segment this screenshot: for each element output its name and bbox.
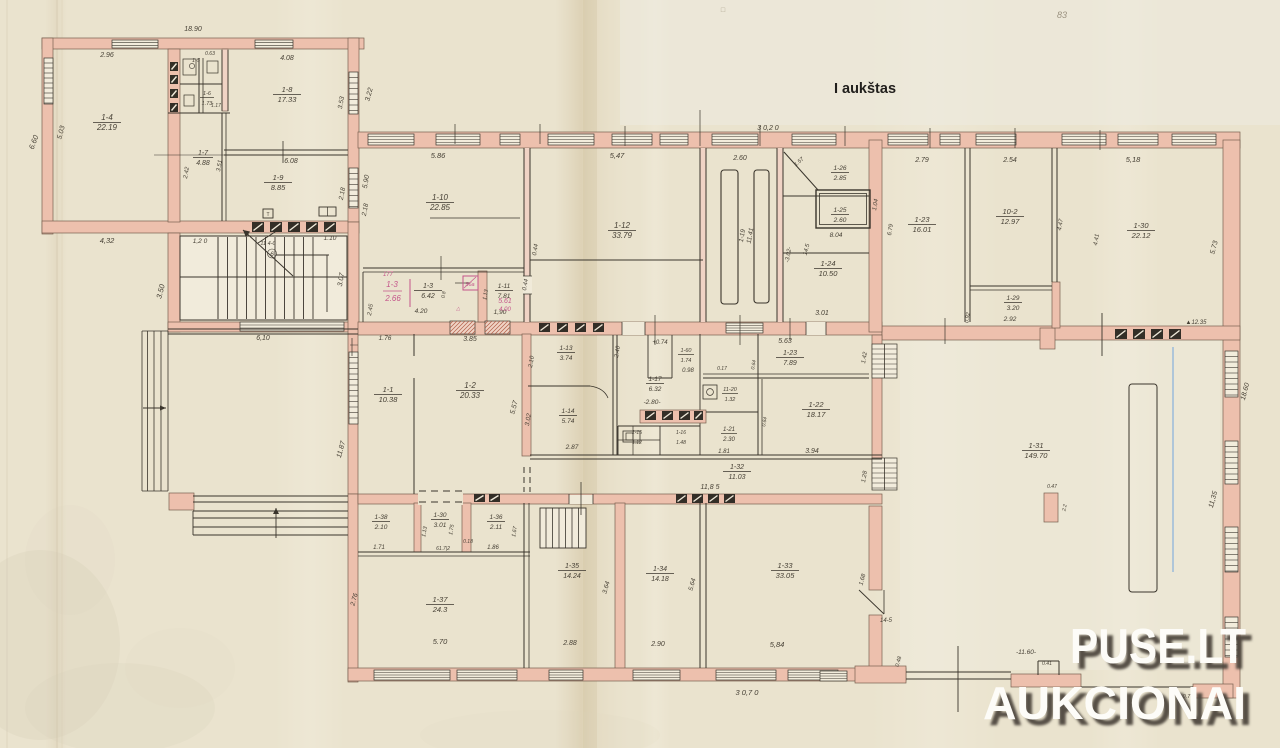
svg-text:20.33: 20.33 xyxy=(459,391,481,400)
svg-text:2.96: 2.96 xyxy=(99,52,114,59)
svg-text:1-37: 1-37 xyxy=(432,595,448,604)
svg-text:4.00: 4.00 xyxy=(499,307,511,313)
svg-text:5.70: 5.70 xyxy=(433,637,448,646)
svg-text:1-22: 1-22 xyxy=(808,400,824,409)
svg-text:4.20: 4.20 xyxy=(415,308,428,315)
svg-text:2.88: 2.88 xyxy=(562,640,577,647)
svg-text:18.90: 18.90 xyxy=(184,26,202,33)
svg-text:22.19: 22.19 xyxy=(96,123,118,132)
svg-text:6.32: 6.32 xyxy=(649,386,662,393)
svg-text:0.17: 0.17 xyxy=(717,366,727,372)
svg-text:2.11: 2.11 xyxy=(489,524,503,531)
svg-text:1-25: 1-25 xyxy=(833,207,846,214)
svg-text:1-3: 1-3 xyxy=(386,280,398,289)
svg-text:1-34: 1-34 xyxy=(653,566,667,573)
svg-text:1-33: 1-33 xyxy=(777,561,793,570)
svg-text:1-15: 1-15 xyxy=(632,430,642,436)
svg-text:1-38: 1-38 xyxy=(374,514,387,521)
svg-text:5,18: 5,18 xyxy=(1126,155,1141,164)
svg-text:1.71: 1.71 xyxy=(373,545,385,551)
svg-text:-11.60-: -11.60- xyxy=(1016,649,1037,656)
svg-text:8.04: 8.04 xyxy=(830,232,843,239)
svg-text:1-26: 1-26 xyxy=(833,165,846,172)
svg-text:14-5: 14-5 xyxy=(880,618,893,624)
svg-text:56a: 56a xyxy=(465,282,474,288)
svg-text:83: 83 xyxy=(1057,10,1067,20)
svg-text:△: △ xyxy=(455,306,460,312)
svg-text:I aukštas: I aukštas xyxy=(834,81,896,97)
svg-text:16.01: 16.01 xyxy=(913,225,932,234)
svg-text:1-36: 1-36 xyxy=(489,514,502,521)
svg-text:33.79: 33.79 xyxy=(612,231,633,240)
svg-text:177: 177 xyxy=(383,272,394,278)
svg-text:3.85: 3.85 xyxy=(463,336,477,343)
svg-text:1-24: 1-24 xyxy=(820,259,835,268)
svg-text:17.33: 17.33 xyxy=(278,95,298,104)
svg-text:0.47: 0.47 xyxy=(1047,484,1057,490)
svg-text:1-14: 1-14 xyxy=(561,408,574,415)
svg-text:1-13: 1-13 xyxy=(559,345,572,352)
svg-text:0.8: 0.8 xyxy=(440,291,447,299)
svg-text:5,84: 5,84 xyxy=(770,640,785,649)
svg-text:18.17: 18.17 xyxy=(807,410,827,419)
svg-text:33.05: 33.05 xyxy=(776,571,796,580)
svg-text:1-3: 1-3 xyxy=(423,283,433,290)
svg-text:1.48: 1.48 xyxy=(676,440,686,446)
svg-text:10.38: 10.38 xyxy=(379,395,399,404)
svg-text:5.86: 5.86 xyxy=(431,151,446,160)
svg-text:1-17: 1-17 xyxy=(648,376,661,383)
svg-text:2.66: 2.66 xyxy=(384,294,401,303)
svg-text:149.70: 149.70 xyxy=(1025,451,1049,460)
svg-text:7.89: 7.89 xyxy=(783,360,797,367)
svg-text:▲12.35: ▲12.35 xyxy=(1186,320,1208,326)
svg-text:1-16: 1-16 xyxy=(676,430,686,436)
svg-text:1-29: 1-29 xyxy=(1006,295,1019,302)
svg-text:5.74: 5.74 xyxy=(562,418,575,425)
svg-text:3.94: 3.94 xyxy=(805,448,819,455)
svg-text:1-31: 1-31 xyxy=(1028,441,1043,450)
svg-text:2.60: 2.60 xyxy=(833,217,847,224)
svg-text:-2.80-: -2.80- xyxy=(644,399,662,406)
svg-text:4.08: 4.08 xyxy=(280,55,294,62)
svg-text:2.30: 2.30 xyxy=(722,437,735,443)
svg-text:1,2 0: 1,2 0 xyxy=(193,238,208,245)
svg-text:1-5: 1-5 xyxy=(192,58,201,64)
svg-text:1-12: 1-12 xyxy=(614,221,631,230)
svg-text:1.32: 1.32 xyxy=(725,397,736,403)
svg-text:10-2: 10-2 xyxy=(1002,207,1018,216)
svg-text:3 0,2 0: 3 0,2 0 xyxy=(757,125,779,132)
svg-text:4.88: 4.88 xyxy=(196,160,210,167)
svg-text:1-7: 1-7 xyxy=(198,150,209,157)
svg-text:22.85: 22.85 xyxy=(429,203,451,212)
svg-text:5.61: 5.61 xyxy=(498,298,512,305)
svg-text:0.41: 0.41 xyxy=(1042,661,1052,667)
svg-text:2.90: 2.90 xyxy=(650,641,665,648)
svg-text:1-6: 1-6 xyxy=(203,91,212,97)
svg-text:1-9: 1-9 xyxy=(273,173,285,182)
svg-text:1-8: 1-8 xyxy=(282,85,294,94)
svg-text:6,10: 6,10 xyxy=(256,335,270,342)
svg-text:1.76: 1.76 xyxy=(379,335,392,342)
svg-text:1.81: 1.81 xyxy=(718,449,730,455)
svg-text:1-10: 1-10 xyxy=(432,193,449,202)
svg-text:6.08: 6.08 xyxy=(284,158,298,165)
svg-text:2.79: 2.79 xyxy=(914,157,929,164)
svg-text:10.50: 10.50 xyxy=(819,269,839,278)
svg-text:8.85: 8.85 xyxy=(271,183,286,192)
svg-text:3.01: 3.01 xyxy=(434,522,447,529)
svg-text:11,8 5: 11,8 5 xyxy=(701,484,720,491)
svg-text:14.18: 14.18 xyxy=(651,576,669,583)
svg-text:11 4-0: 11 4-0 xyxy=(260,241,276,247)
svg-text:1-30: 1-30 xyxy=(433,512,446,519)
svg-text:1.12: 1.12 xyxy=(632,440,642,446)
svg-text:1-1: 1-1 xyxy=(383,385,394,394)
svg-text:5.63: 5.63 xyxy=(778,338,792,345)
svg-text:11-20: 11-20 xyxy=(723,387,738,393)
svg-text:2.87: 2.87 xyxy=(565,444,579,451)
svg-text:4,32: 4,32 xyxy=(100,236,115,245)
svg-text:T: T xyxy=(266,212,269,218)
svg-text:3.01: 3.01 xyxy=(815,310,829,317)
svg-text:2.60: 2.60 xyxy=(732,155,747,162)
svg-text:6.42: 6.42 xyxy=(421,293,435,300)
svg-text:2.10: 2.10 xyxy=(374,524,388,531)
svg-text:2.54: 2.54 xyxy=(1002,157,1017,164)
svg-text:1-2: 1-2 xyxy=(464,381,476,390)
svg-text:5,47: 5,47 xyxy=(610,151,625,160)
svg-text:2.85: 2.85 xyxy=(833,175,847,182)
svg-text:1-30: 1-30 xyxy=(1133,221,1149,230)
svg-text:3 0,7 0: 3 0,7 0 xyxy=(736,688,760,697)
svg-text:1-32: 1-32 xyxy=(730,464,744,471)
svg-text:1.86: 1.86 xyxy=(487,545,499,551)
svg-text:+0.74: +0.74 xyxy=(652,340,668,346)
svg-text:1-60: 1-60 xyxy=(680,348,692,354)
svg-text:61.7|2: 61.7|2 xyxy=(436,546,450,552)
svg-text:0.98: 0.98 xyxy=(682,368,694,374)
svg-text:1-21: 1-21 xyxy=(723,427,735,433)
svg-text:1-35: 1-35 xyxy=(565,563,579,570)
svg-text:AUKCIONAI: AUKCIONAI xyxy=(983,677,1246,729)
svg-text:1-23: 1-23 xyxy=(914,215,930,224)
svg-text:2.92: 2.92 xyxy=(1003,316,1017,323)
svg-text:1-4: 1-4 xyxy=(101,113,113,122)
svg-text:3.20: 3.20 xyxy=(1007,305,1020,312)
svg-text:22.12: 22.12 xyxy=(1131,231,1152,240)
svg-text:3.74: 3.74 xyxy=(560,355,573,362)
svg-text:1.74: 1.74 xyxy=(681,358,692,364)
svg-text:1.10: 1.10 xyxy=(324,235,337,242)
svg-text:24.3: 24.3 xyxy=(432,605,448,614)
svg-text:PUSE.LT: PUSE.LT xyxy=(1070,620,1246,674)
svg-text:0.63: 0.63 xyxy=(205,51,215,57)
svg-text:1.17: 1.17 xyxy=(211,103,221,109)
svg-text:14.24: 14.24 xyxy=(563,573,581,580)
svg-text:12.97: 12.97 xyxy=(1001,217,1021,226)
svg-text:0.18: 0.18 xyxy=(463,539,473,545)
svg-text:11.03: 11.03 xyxy=(729,474,746,481)
svg-text:1-23: 1-23 xyxy=(783,350,797,357)
svg-text:6: 6 xyxy=(270,251,274,258)
svg-text:1-11: 1-11 xyxy=(498,283,511,290)
